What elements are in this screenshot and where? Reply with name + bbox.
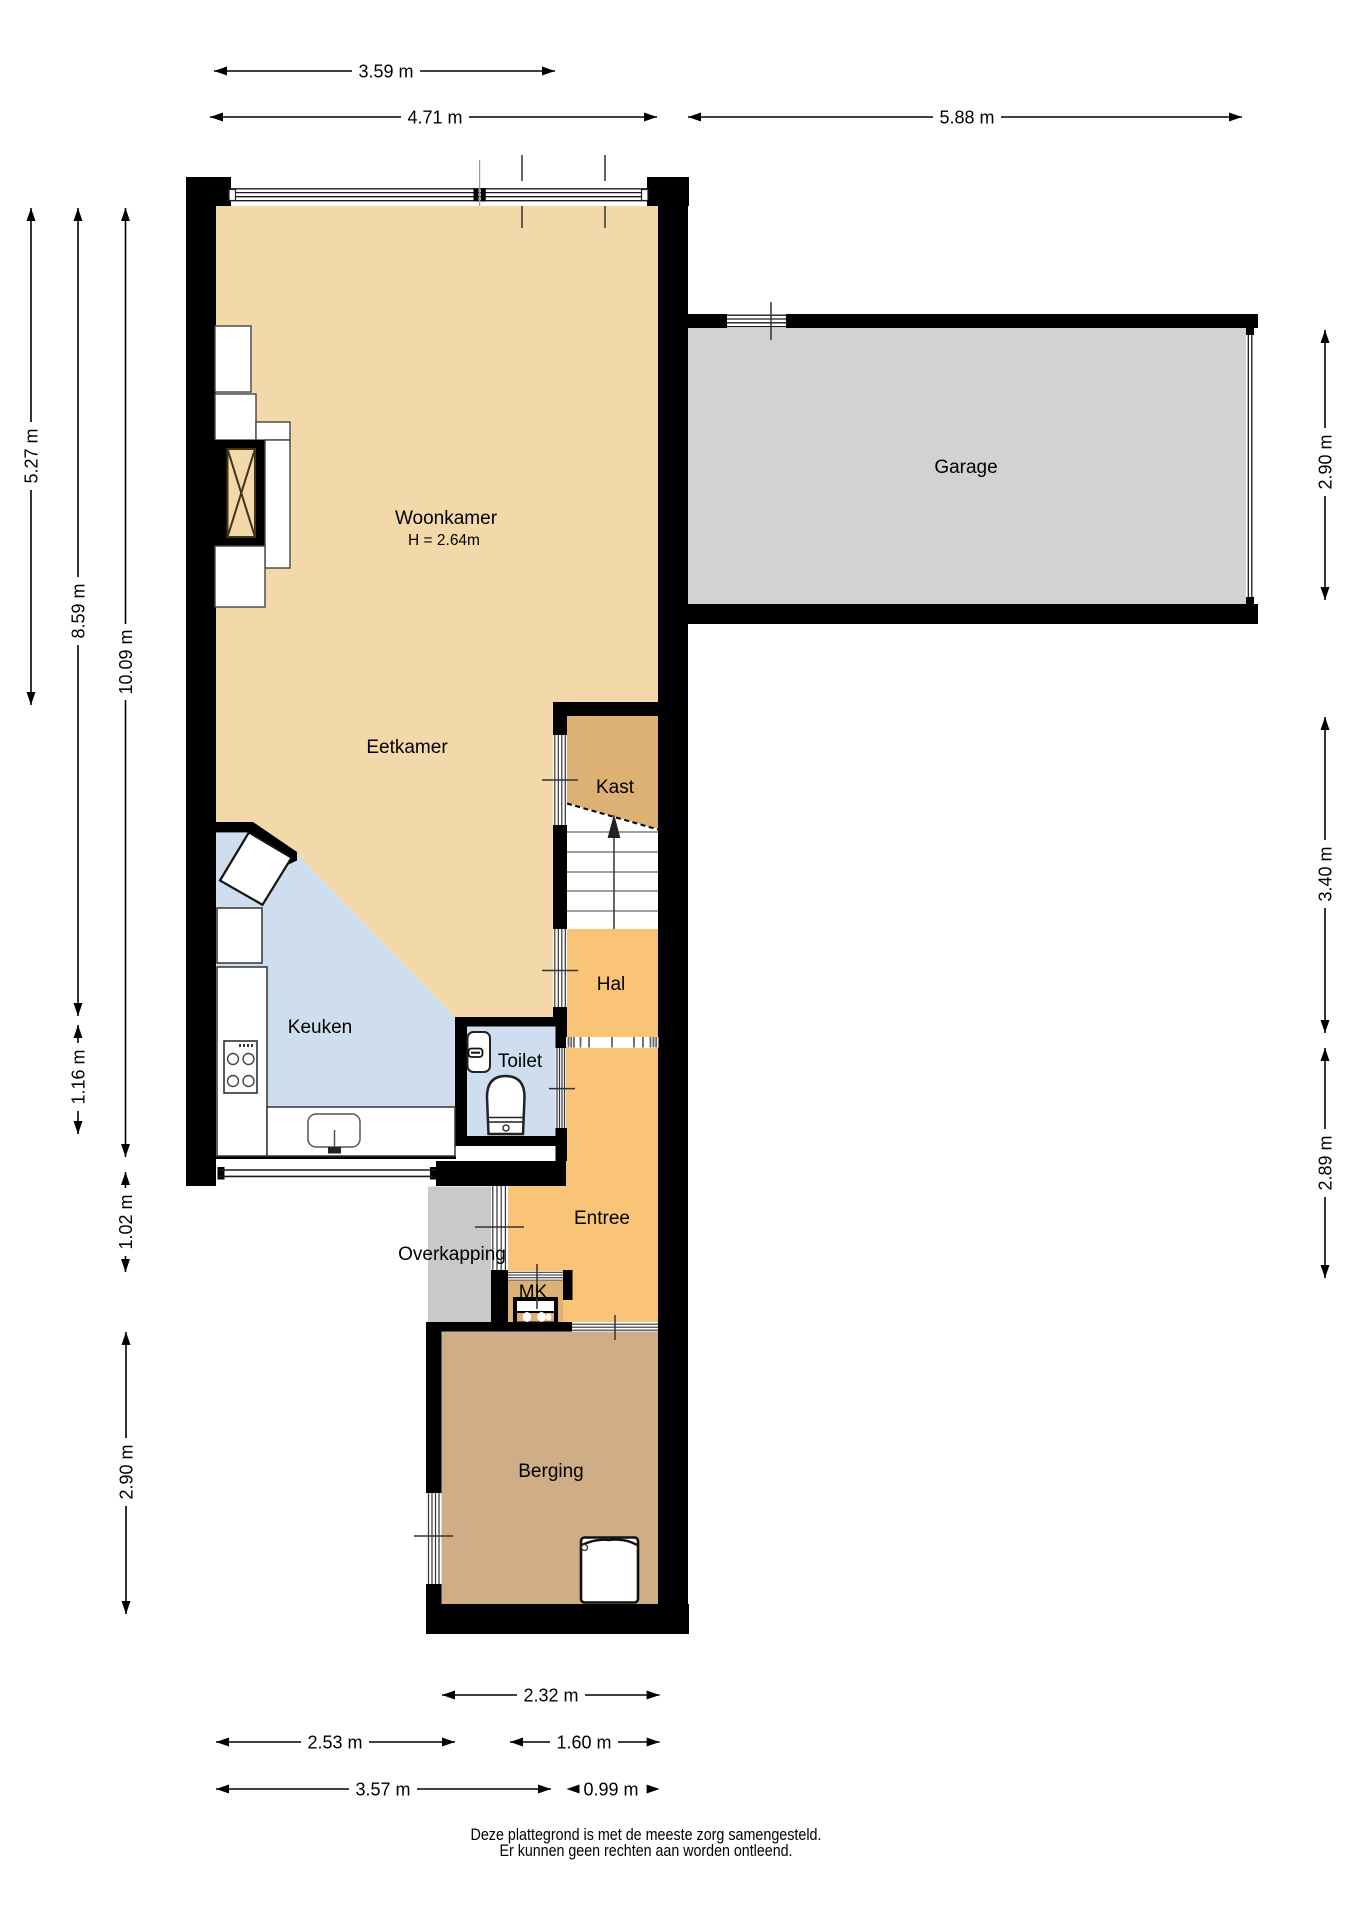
- svg-text:3.57 m: 3.57 m: [355, 1780, 410, 1800]
- svg-text:1.60 m: 1.60 m: [556, 1733, 611, 1753]
- svg-text:2.90 m: 2.90 m: [117, 1444, 137, 1499]
- svg-text:5.27 m: 5.27 m: [22, 428, 42, 483]
- svg-text:1.02 m: 1.02 m: [116, 1194, 136, 1249]
- svg-text:1.16 m: 1.16 m: [69, 1049, 89, 1104]
- svg-text:0.99 m: 0.99 m: [583, 1780, 638, 1800]
- svg-text:10.09 m: 10.09 m: [116, 629, 136, 694]
- svg-text:2.89 m: 2.89 m: [1316, 1135, 1336, 1190]
- svg-text:Er kunnen geen rechten aan wor: Er kunnen geen rechten aan worden ontlee…: [500, 1841, 793, 1860]
- svg-text:Garage: Garage: [934, 457, 997, 478]
- svg-text:8.59 m: 8.59 m: [69, 583, 89, 638]
- svg-text:5.88 m: 5.88 m: [939, 108, 994, 128]
- svg-text:3.40 m: 3.40 m: [1316, 846, 1336, 901]
- svg-text:Kast: Kast: [596, 777, 635, 798]
- svg-text:H = 2.64m: H = 2.64m: [408, 532, 480, 549]
- svg-text:Overkapping: Overkapping: [398, 1244, 506, 1265]
- svg-text:Keuken: Keuken: [288, 1017, 352, 1038]
- svg-text:2.90 m: 2.90 m: [1316, 434, 1336, 489]
- svg-text:Eetkamer: Eetkamer: [366, 737, 448, 758]
- svg-text:3.59 m: 3.59 m: [358, 62, 413, 82]
- svg-text:Entree: Entree: [574, 1208, 630, 1229]
- svg-text:Toilet: Toilet: [498, 1051, 543, 1072]
- svg-text:4.71 m: 4.71 m: [407, 108, 462, 128]
- svg-text:2.53 m: 2.53 m: [307, 1733, 362, 1753]
- svg-text:Woonkamer: Woonkamer: [395, 508, 498, 529]
- svg-text:Hal: Hal: [597, 974, 626, 995]
- svg-text:MK: MK: [519, 1282, 548, 1303]
- svg-text:Berging: Berging: [518, 1461, 584, 1482]
- svg-text:2.32 m: 2.32 m: [523, 1686, 578, 1706]
